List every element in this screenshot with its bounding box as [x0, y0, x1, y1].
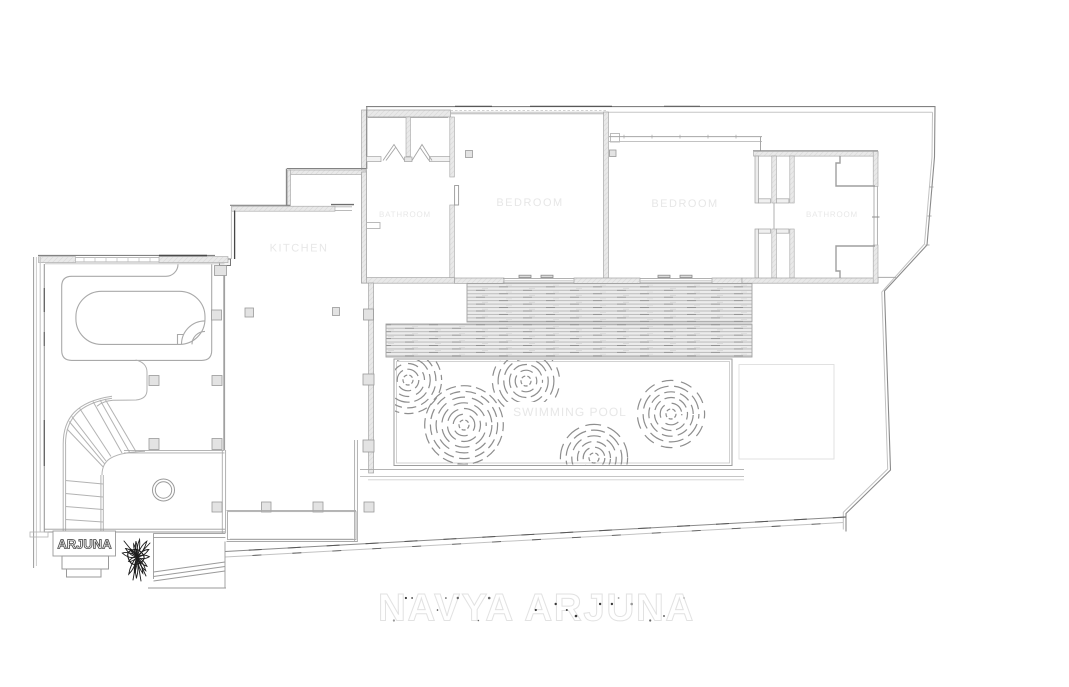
svg-text:ARJUNA: ARJUNA [57, 537, 112, 552]
svg-text:BEDROOM: BEDROOM [496, 197, 563, 209]
svg-text:BATHROOM: BATHROOM [379, 210, 431, 219]
svg-text:NAVYA ARJUNA: NAVYA ARJUNA [378, 587, 695, 630]
svg-text:SWIMMING POOL: SWIMMING POOL [513, 405, 627, 419]
svg-text:BEDROOM: BEDROOM [651, 198, 718, 210]
svg-text:KITCHEN: KITCHEN [270, 243, 329, 255]
svg-text:BATHROOM: BATHROOM [806, 210, 858, 219]
